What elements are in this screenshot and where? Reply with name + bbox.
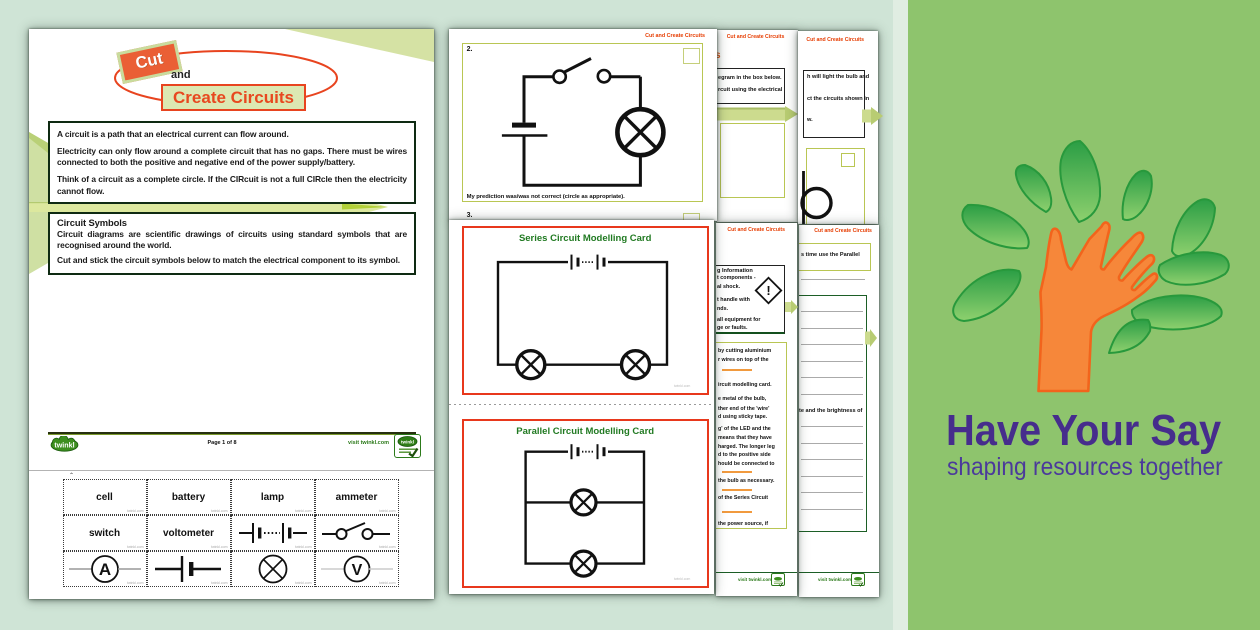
svg-text:!: !: [766, 283, 770, 298]
svg-text:V: V: [351, 562, 362, 579]
svg-text:A: A: [98, 560, 110, 579]
svg-text:twinkl: twinkl: [401, 439, 414, 444]
svg-text:twinkl: twinkl: [54, 442, 74, 450]
